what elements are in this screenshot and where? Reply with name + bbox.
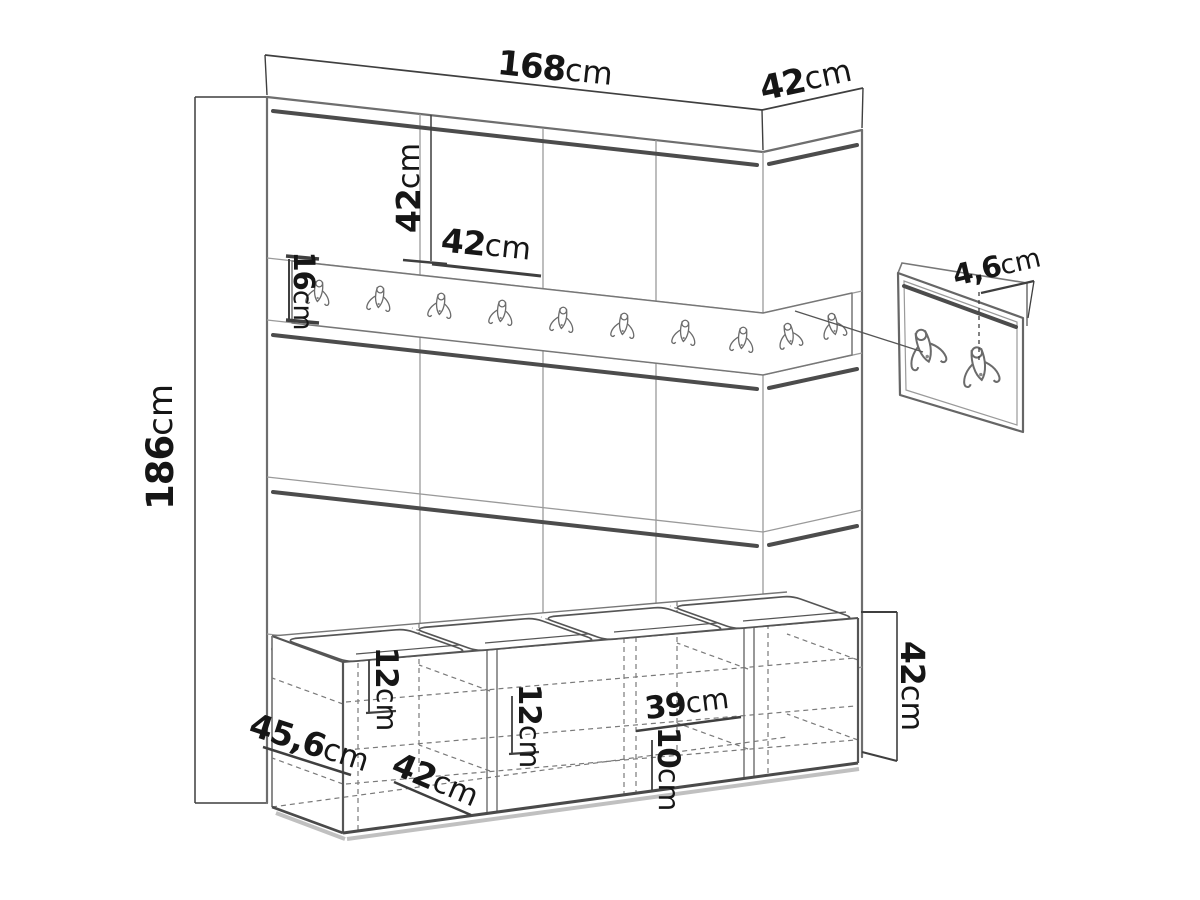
dim-total-width: 168cm	[265, 43, 763, 150]
dim-rail-height: 16cm	[286, 251, 321, 330]
dim-label-panel-width: 42cm	[439, 220, 533, 268]
dim-total-height: 186cm	[139, 97, 267, 803]
dim-shelf-top: 12cm	[366, 647, 405, 732]
dim-label-rail-height: 16cm	[287, 251, 321, 330]
dim-label-shelf-mid: 12cm	[512, 684, 548, 769]
dim-side-depth: 42cm	[756, 50, 863, 128]
dim-label-shelf-bottom: 10cm	[651, 727, 687, 812]
storage-bench	[272, 592, 859, 839]
coat-hook-rail	[292, 261, 852, 375]
dim-label-total-width: 168cm	[496, 43, 615, 95]
dim-label-bench-height: 42cm	[894, 641, 933, 731]
dim-panel-height: 42cm	[389, 115, 448, 264]
dim-bench-height: 42cm	[861, 612, 933, 761]
dim-shelf-mid: 12cm	[509, 684, 548, 769]
furniture-drawing-canvas: 186cm 168cm 42cm 42cm 42cm 16cm	[0, 0, 1200, 900]
dim-label-panel-height: 42cm	[389, 143, 428, 233]
dim-panel-width: 42cm	[432, 220, 541, 276]
dim-shelf-bottom: 10cm	[651, 727, 687, 812]
dim-label-hook-projection: 4,6cm	[949, 239, 1043, 292]
dim-label-total-height: 186cm	[139, 384, 182, 510]
dim-label-shelf-top: 12cm	[369, 647, 405, 732]
dimension-diagram: 186cm 168cm 42cm 42cm 42cm 16cm	[0, 0, 1200, 900]
